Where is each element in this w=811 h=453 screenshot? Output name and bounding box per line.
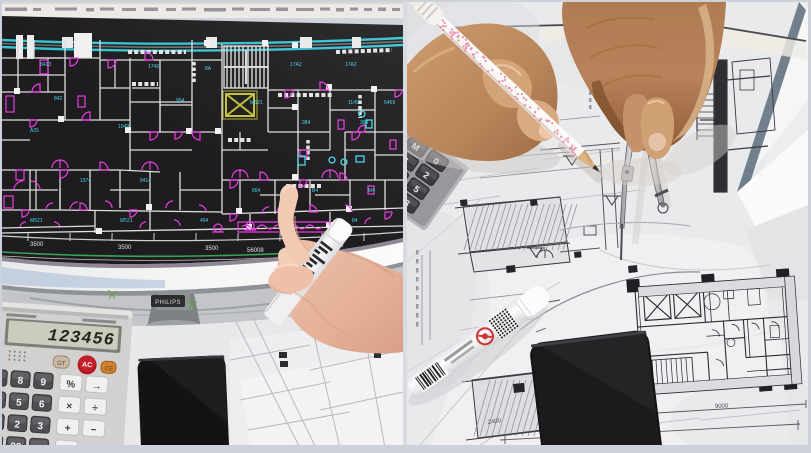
svg-text:PHILIPS: PHILIPS [155,300,181,306]
svg-text:GT: GT [57,361,66,368]
svg-text:−: − [90,425,97,436]
svg-text:→: → [91,381,102,393]
svg-text:+: + [64,423,71,434]
svg-text:×: × [66,401,73,412]
svg-text:CE: CE [105,366,114,373]
svg-text:%: % [66,379,76,391]
svg-text:9000: 9000 [715,403,729,410]
svg-text:AC: AC [82,362,93,370]
